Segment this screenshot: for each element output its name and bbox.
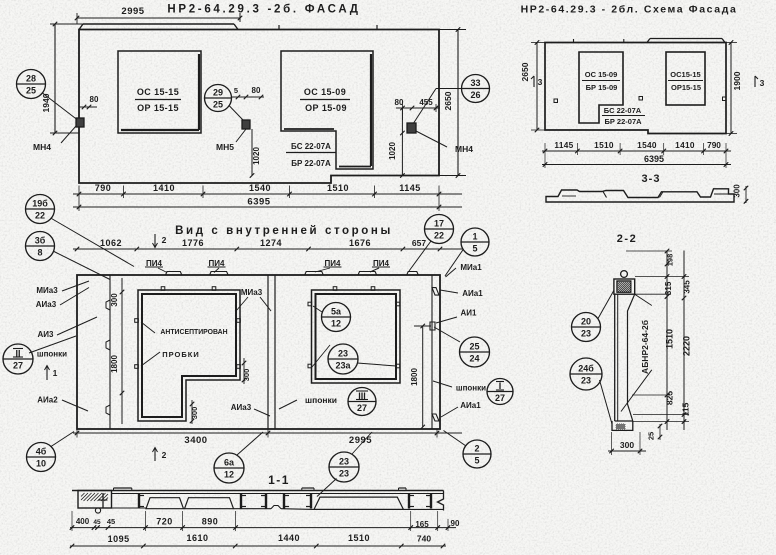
svg-text:315: 315 [664,281,673,295]
svg-text:45: 45 [93,519,101,526]
svg-text:3400: 3400 [184,435,207,446]
svg-text:МН5: МН5 [216,142,234,152]
svg-text:БС 22-07А: БС 22-07А [291,142,331,151]
svg-text:1800: 1800 [410,368,419,386]
svg-text:27: 27 [357,403,367,413]
svg-text:80: 80 [90,95,99,104]
svg-text:22: 22 [434,231,444,241]
svg-text:12: 12 [224,470,234,480]
svg-text:740: 740 [417,534,431,544]
svg-text:АНТИСЕПТИРОВАН: АНТИСЕПТИРОВАН [160,327,227,336]
svg-text:890: 890 [202,517,219,527]
svg-text:ОС 15-09: ОС 15-09 [585,70,618,79]
svg-text:720: 720 [156,517,173,527]
svg-text:АБНР2-64-2б: АБНР2-64-2б [640,320,650,374]
svg-text:29: 29 [213,87,223,97]
svg-text:I: I [499,381,502,391]
svg-text:455: 455 [419,98,433,107]
svg-text:23: 23 [581,376,591,386]
svg-text:4б: 4б [36,446,47,456]
svg-text:25: 25 [647,432,656,440]
svg-text:1410: 1410 [675,140,695,150]
svg-text:1440: 1440 [278,533,300,543]
svg-text:ОС 15-15: ОС 15-15 [137,87,179,97]
svg-text:400: 400 [76,517,90,526]
svg-text:1: 1 [53,368,58,378]
svg-text:МИа3: МИа3 [36,286,58,295]
svg-text:80: 80 [252,86,261,95]
svg-text:АИа2: АИа2 [37,396,58,405]
svg-text:25: 25 [26,86,36,96]
svg-text:90: 90 [451,519,460,528]
svg-text:МН4: МН4 [33,142,51,152]
svg-text:25: 25 [469,341,479,351]
svg-text:2650: 2650 [443,91,453,110]
svg-text:1510: 1510 [665,329,675,349]
svg-text:2: 2 [162,450,167,460]
svg-text:АИ1: АИ1 [461,309,478,318]
svg-text:300: 300 [733,184,742,198]
svg-text:22: 22 [35,211,45,221]
svg-text:АИа1: АИа1 [462,289,483,298]
svg-text:2220: 2220 [682,336,692,356]
svg-text:1510: 1510 [348,533,370,543]
svg-text:МИа1: МИа1 [460,263,482,272]
svg-text:23: 23 [339,469,349,479]
svg-text:10: 10 [36,459,46,469]
svg-text:3-3: 3-3 [642,173,661,185]
svg-text:790: 790 [95,183,112,193]
svg-text:1510: 1510 [594,140,614,150]
svg-text:1062: 1062 [100,238,122,248]
svg-text:80: 80 [395,98,404,107]
svg-text:300: 300 [620,440,634,450]
svg-text:2-2: 2-2 [617,233,637,245]
svg-text:345: 345 [683,280,692,294]
svg-text:БР 15-09: БР 15-09 [586,83,618,92]
svg-text:12: 12 [331,319,341,329]
svg-text:24б: 24б [578,363,594,373]
svg-text:1020: 1020 [252,147,261,165]
svg-text:3: 3 [538,77,543,87]
svg-text:ОР15-15: ОР15-15 [671,83,701,92]
svg-text:27: 27 [495,393,505,403]
svg-text:ОС 15-09: ОС 15-09 [304,87,346,97]
svg-text:657: 657 [412,238,426,248]
svg-text:1274: 1274 [260,238,282,248]
svg-text:АИ3: АИ3 [38,330,55,339]
svg-text:3б: 3б [35,235,46,245]
svg-text:БР 22-07А: БР 22-07А [604,117,642,126]
svg-text:1020: 1020 [388,142,397,160]
svg-text:26: 26 [470,90,480,100]
svg-text:28: 28 [26,73,36,83]
svg-text:АИа3: АИа3 [36,300,57,309]
svg-text:1145: 1145 [399,183,421,193]
svg-text:1410: 1410 [153,183,175,193]
svg-text:2: 2 [474,443,479,453]
svg-text:ОР 15-15: ОР 15-15 [137,103,179,113]
svg-text:5: 5 [472,244,477,254]
svg-text:45: 45 [107,517,115,526]
svg-text:27: 27 [13,361,23,371]
svg-text:8: 8 [37,248,42,258]
svg-text:БР 22-07А: БР 22-07А [291,159,331,168]
svg-text:5: 5 [234,86,238,95]
svg-text:23: 23 [338,348,348,358]
svg-text:ОС15-15: ОС15-15 [670,70,700,79]
svg-text:3: 3 [760,78,765,88]
svg-text:5: 5 [474,456,479,466]
svg-text:1800: 1800 [110,355,119,373]
svg-text:АИа3: АИа3 [231,403,252,412]
svg-text:1610: 1610 [186,533,208,543]
svg-text:6395: 6395 [644,154,664,164]
svg-text:300: 300 [242,369,251,382]
svg-text:23: 23 [339,456,349,466]
svg-text:23: 23 [581,329,591,339]
svg-text:АИа1: АИа1 [460,401,481,410]
svg-text:шпонки: шпонки [37,350,67,359]
svg-text:ОР 15-09: ОР 15-09 [305,103,347,113]
svg-text:МН4: МН4 [455,144,473,154]
svg-text:шпонки: шпонки [305,395,337,405]
svg-text:24: 24 [469,354,479,364]
svg-text:Вид с внутренней стороны: Вид с внутренней стороны [175,225,393,237]
svg-text:1: 1 [472,231,477,241]
svg-text:БС 22-07А: БС 22-07А [604,106,642,115]
svg-text:1510: 1510 [327,183,349,193]
svg-text:1540: 1540 [249,183,271,193]
svg-text:1095: 1095 [108,534,130,544]
svg-text:2995: 2995 [121,6,144,17]
svg-text:1776: 1776 [182,238,204,248]
svg-text:1540: 1540 [637,140,657,150]
svg-text:25: 25 [213,100,223,110]
svg-text:20: 20 [581,316,591,326]
svg-text:165: 165 [415,520,429,529]
svg-text:НР2-64.29.3 -2б. ФАСАД: НР2-64.29.3 -2б. ФАСАД [167,4,360,16]
svg-text:6а: 6а [224,457,235,467]
svg-text:2: 2 [162,235,167,245]
svg-text:1676: 1676 [349,238,371,248]
svg-text:300: 300 [190,407,199,420]
svg-text:1145: 1145 [554,140,573,150]
svg-text:МИа3: МИа3 [241,288,263,297]
svg-text:шпонки: шпонки [456,384,486,393]
svg-text:НР2-64.29.3 - 2бл. Схема Фасад: НР2-64.29.3 - 2бл. Схема Фасада [521,4,738,16]
svg-text:23а: 23а [335,361,351,371]
svg-text:198: 198 [666,254,675,267]
svg-text:19б: 19б [32,198,48,208]
svg-text:ПРОБКИ: ПРОБКИ [162,350,200,359]
svg-text:17: 17 [434,218,444,228]
svg-text:300: 300 [110,293,119,307]
svg-text:1900: 1900 [732,71,742,90]
svg-text:1-1: 1-1 [268,473,290,487]
svg-text:2650: 2650 [520,62,530,81]
svg-text:5а: 5а [331,306,342,316]
svg-text:33: 33 [470,78,480,88]
svg-text:825: 825 [665,391,675,405]
svg-text:790: 790 [707,140,721,150]
svg-text:6395: 6395 [247,197,270,208]
